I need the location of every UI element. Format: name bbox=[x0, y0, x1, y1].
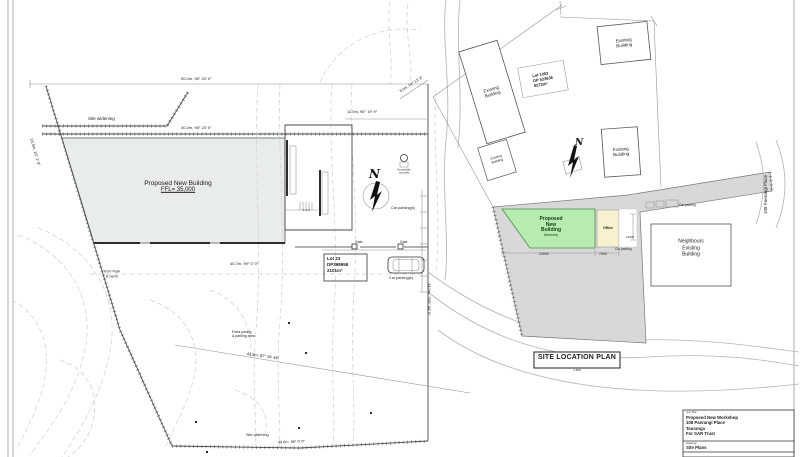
contour-line bbox=[435, 90, 438, 270]
site-plan-canvas bbox=[0, 0, 800, 457]
gate-label: Gate bbox=[355, 240, 363, 244]
car-parking-label: Car parking bbox=[615, 248, 631, 252]
building-name: Proposed New Building bbox=[144, 180, 212, 187]
annex-room bbox=[322, 172, 328, 214]
sight-line bbox=[175, 345, 470, 393]
car-parking-label: Car parking(s) bbox=[389, 276, 413, 280]
proposed-building-footprint bbox=[62, 84, 352, 447]
north-arrow-small-icon bbox=[563, 145, 582, 178]
north-letter: N bbox=[369, 168, 380, 182]
boundary-line bbox=[42, 92, 188, 126]
contour-line bbox=[210, 290, 251, 360]
drawing-sheet: Site widening 50.0m, 96° 20′ 0″ 40.2m, 9… bbox=[0, 0, 800, 457]
extra-paving-label: Extra paving & parking area bbox=[232, 330, 255, 338]
bearing-label: 40.2m, 96° 20′ 0″ bbox=[181, 126, 211, 131]
building-label: Proposed New Building FFL= 35,000 bbox=[144, 180, 212, 194]
accessible-parking-icon bbox=[400, 155, 408, 168]
annex-wall bbox=[287, 140, 320, 216]
boundary-hatch bbox=[42, 92, 188, 126]
car-parking-label: Car parking(s) bbox=[391, 206, 415, 210]
office-label: Office bbox=[603, 226, 613, 230]
job-title-label: Job Title: bbox=[686, 411, 697, 414]
compass-needle bbox=[370, 181, 382, 212]
neighbours-building-label: Neighbours Existing Building bbox=[678, 238, 704, 258]
plan-scale: 1:500 bbox=[534, 369, 620, 372]
dimension-label: 11000 bbox=[626, 236, 634, 239]
site-widening-label: Site widening bbox=[88, 116, 115, 121]
parking-bay-ticks bbox=[420, 196, 428, 292]
building-annex bbox=[285, 125, 352, 230]
contour-line bbox=[320, 29, 420, 82]
bearing-label: 34.0m, 359° 44′ 0″ bbox=[426, 283, 431, 316]
contour-line bbox=[12, 300, 46, 450]
existing-building-label: ExistingBuilding bbox=[615, 37, 632, 49]
contour-line bbox=[60, 360, 95, 457]
car-windscreen bbox=[399, 258, 412, 272]
lot-23-label: Lot 23 DP398958 2101m² bbox=[327, 256, 348, 274]
car-icon bbox=[388, 257, 424, 273]
yard-area bbox=[619, 209, 637, 247]
contour-line bbox=[38, 228, 112, 457]
bearing-label: 50.0m, 96° 20′ 0″ bbox=[181, 77, 211, 82]
gate-post bbox=[398, 244, 403, 249]
building-ffl: FFL= 35,000 bbox=[144, 187, 212, 194]
accessible-park-label: Accessible car park bbox=[397, 169, 410, 176]
hsv-park-label: HSV Park & berm bbox=[104, 269, 121, 278]
contour-line bbox=[235, 390, 266, 435]
bearing-label: 49.6m, 99° 0′ 0″ bbox=[278, 440, 305, 445]
north-arrow-icon bbox=[363, 181, 389, 212]
gate-post bbox=[352, 244, 357, 249]
accessible-symbol bbox=[401, 155, 408, 162]
contour-line bbox=[150, 300, 196, 448]
street-edge bbox=[776, 140, 785, 228]
accessible-bay bbox=[400, 162, 408, 167]
dimension-label: 24000 bbox=[539, 252, 549, 256]
site-location-plan bbox=[433, 1, 785, 368]
contour-line bbox=[407, 4, 411, 84]
spot-levels bbox=[195, 322, 372, 453]
north-letter: N bbox=[575, 138, 583, 148]
contour-line bbox=[18, 235, 87, 455]
bearing-label: 45.7m, 99° 0′ 0″ bbox=[230, 262, 258, 267]
gate-label: Gate bbox=[400, 240, 408, 244]
dimension-label: 7000 bbox=[599, 252, 607, 256]
project-client: For SAR Trust bbox=[686, 432, 715, 437]
street-name-label: 108 Paerangi Place bbox=[763, 175, 768, 214]
existing-building-label: ExistingBuilding bbox=[613, 146, 630, 158]
annex-room bbox=[290, 146, 296, 194]
car-cabin bbox=[393, 260, 419, 271]
road-edge bbox=[458, 0, 460, 148]
car-parking-label: Car parking bbox=[679, 204, 695, 208]
site-widening-label: Site widening bbox=[246, 433, 269, 437]
contour-line bbox=[389, 2, 391, 84]
stair-numbers: 1 2 3 bbox=[303, 209, 310, 212]
road-edge bbox=[444, 0, 447, 280]
bearing-label: 11.0m, 96° 19′ 9″ bbox=[347, 110, 377, 115]
drawing-name: Site Plans bbox=[686, 446, 707, 451]
plan-title: SITE LOCATION PLAN bbox=[534, 354, 620, 362]
workshop-label: Proposed New Building Workshop bbox=[539, 217, 562, 237]
